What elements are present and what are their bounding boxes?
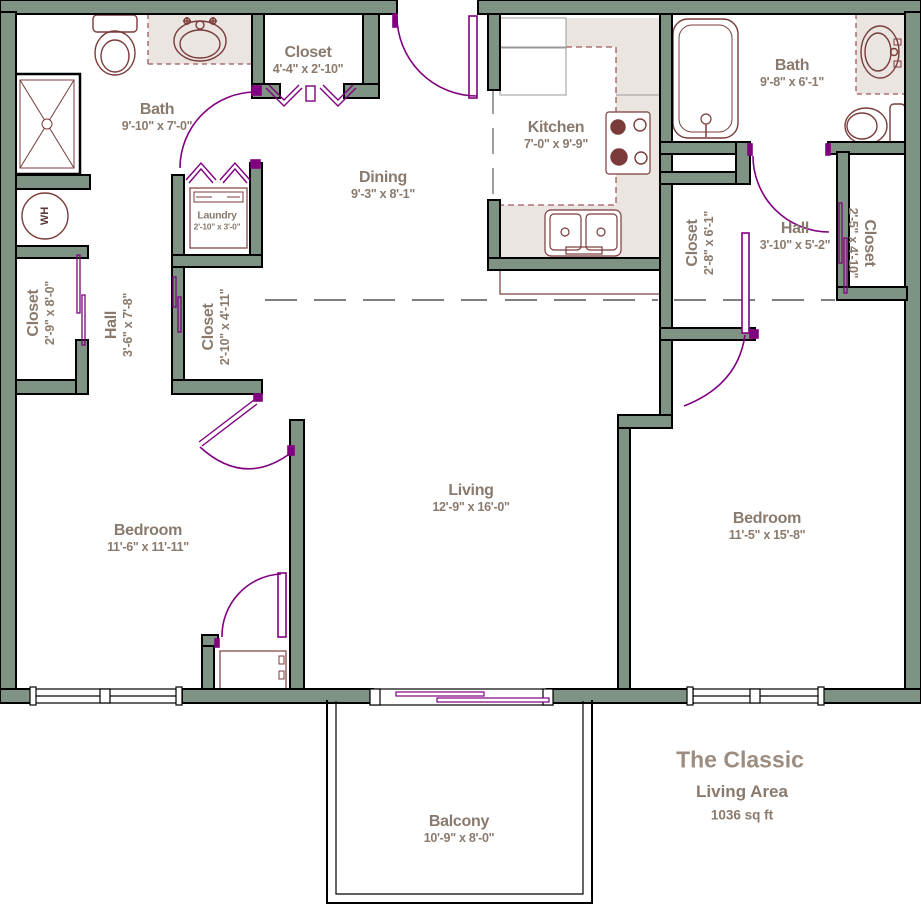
room-label-balcony: Balcony 10'-9" x 8'-0" [424,813,495,845]
room-name: Kitchen [524,119,588,137]
toilet-left-icon [93,15,137,32]
room-dims: 2'-10" x 4'-11" [218,289,232,366]
room-dims: 7'-0" x 9'-9" [524,137,588,151]
room-label-bedroom-left: Bedroom 11'-6" x 11'-11" [107,522,189,554]
room-dims: 3'-10" x 5'-2" [760,238,831,252]
room-name: Laundry [194,210,241,222]
room-name: Closet [273,44,344,62]
room-label-dining: Dining 9'-3" x 8'-1" [351,169,415,201]
laundry-bifold-door [186,163,250,183]
living-area-label: Living Area [696,782,788,802]
room-label-closet-right: Closet 2'-8" x 6'-1" [684,211,716,275]
room-name: Bedroom [107,522,189,540]
room-name: Bath [122,101,193,119]
water-heater-label: WH [39,207,51,225]
room-name: Hall [760,220,831,238]
room-dims: 2'-8" x 6'-1" [702,211,716,275]
bar-counter [500,270,660,294]
room-dims: 4'-4" x 2'-10" [273,62,344,76]
room-label-bath-left: Bath 9'-10" x 7'-0" [122,101,193,133]
room-name: Closet [200,289,218,366]
window-bedroom-right [687,687,824,705]
entry-door [393,14,477,98]
room-label-bedroom-right: Bedroom 11'-5" x 15'-8" [729,510,806,542]
window-bedroom-left [30,687,182,705]
room-dims: 9'-8" x 6'-1" [760,75,824,89]
room-label-closet-left: Closet 2'-9" x 8'-0" [25,281,57,345]
floor-plan: WH Bath 9'-10" x 7'-0" Closet 4'-4" x 2'… [0,0,921,913]
room-dims: 2'-9" x 8'-0" [43,281,57,345]
floorplan-drawing: WH [0,0,921,913]
living-area-value: 1036 sq ft [711,808,773,823]
room-dims: 3'-6" x 7'-8" [121,293,135,357]
room-dims: 9'-10" x 7'-0" [122,119,193,133]
closet-left-sliding-door [77,255,85,345]
niche-door [215,573,286,647]
windows-layer [30,687,824,705]
stove-icon [606,112,650,174]
room-name: Balcony [424,813,495,831]
room-name: Bath [760,57,824,75]
room-label-laundry: Laundry 2'-10" x 3'-0" [194,210,241,231]
bath-right-door [748,144,830,232]
room-dims: 2'-10" x 3'-0" [194,222,241,232]
bedroom-left-door [199,394,294,469]
kitchen-sink-icon [545,210,621,256]
sliding-door-balcony [370,689,553,705]
room-name: Living [432,482,509,500]
room-label-kitchen: Kitchen 7'-0" x 9'-9" [524,119,588,151]
room-name: Closet [25,281,43,345]
room-label-closet-mid-left: Closet 2'-10" x 4'-11" [200,289,232,366]
room-label-living: Living 12'-9" x 16'-0" [432,482,509,514]
niche-appliance-icon [220,651,286,689]
room-name: Closet [860,208,878,279]
room-dims: 10'-9" x 8'-0" [424,831,495,845]
room-label-closet-far-right: Closet 2'-5" x 4'-10" [846,208,878,279]
balcony-outline [327,700,592,903]
room-label-bath-right: Bath 9'-8" x 6'-1" [760,57,824,89]
room-name: Dining [351,169,415,187]
room-dims: 9'-3" x 8'-1" [351,187,415,201]
bathtub-icon [673,19,738,138]
room-name: Closet [684,211,702,275]
room-dims: 11'-5" x 15'-8" [729,528,806,542]
toilet-right-icon [845,104,905,147]
room-label-hall-left: Hall 3'-6" x 7'-8" [103,293,135,357]
shower-icon [14,74,80,174]
room-label-closet-top: Closet 4'-4" x 2'-10" [273,44,344,76]
room-name: Bedroom [729,510,806,528]
room-name: Hall [103,293,121,357]
room-dims: 12'-9" x 16'-0" [432,500,509,514]
plan-title: The Classic [676,747,804,774]
room-dims: 11'-6" x 11'-11" [107,540,189,554]
room-dims: 2'-5" x 4'-10" [846,208,860,279]
room-label-hall-right: Hall 3'-10" x 5'-2" [760,220,831,252]
